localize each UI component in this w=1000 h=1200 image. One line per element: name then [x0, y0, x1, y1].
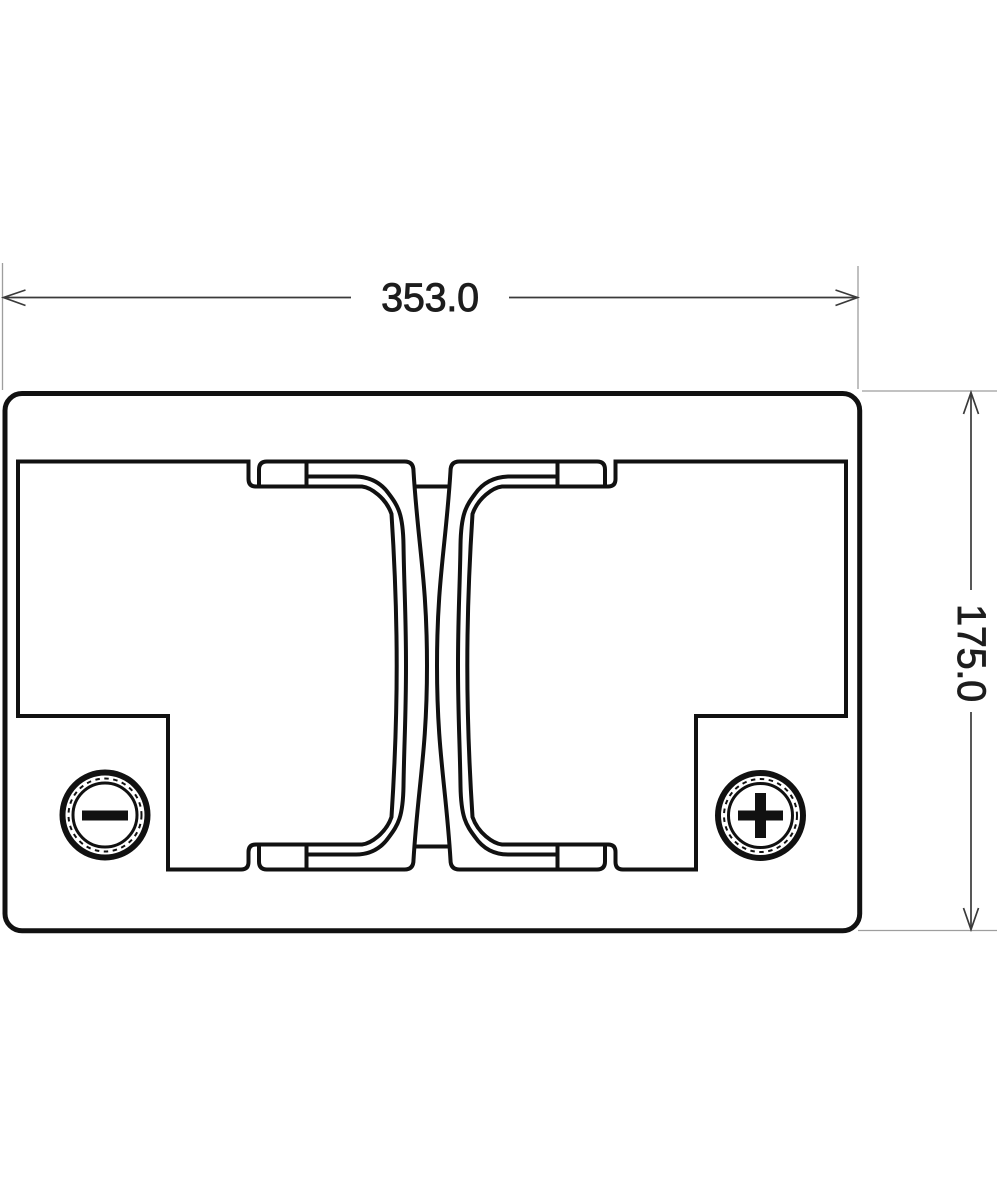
- svg-text:353.0: 353.0: [381, 276, 479, 320]
- svg-text:175.0: 175.0: [949, 604, 993, 702]
